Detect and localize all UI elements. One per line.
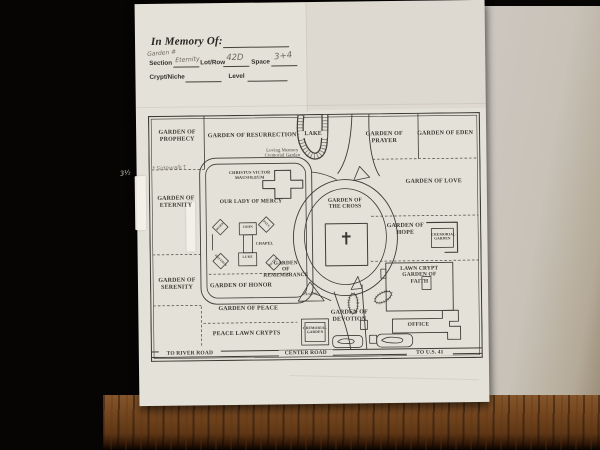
label-garden-of-resurrection: GARDEN OF RESURRECTION: [206, 132, 298, 140]
level-field-line: [247, 79, 287, 81]
photo-of-cemetery-map-document: { "form": { "title": "In Memory Of:", "a…: [0, 0, 600, 450]
label-our-lady-of-mercy: OUR LADY OF MERCY: [217, 198, 285, 205]
label-garden-of-honor: GARDEN OF HONOR: [204, 282, 278, 290]
label-garden-of-hope: GARDEN OF HOPE: [381, 223, 429, 237]
space-label: Space: [251, 59, 270, 66]
table-surface-right: [481, 6, 600, 398]
label-lake: LAKE: [299, 131, 327, 138]
label-cremorial-garden-devotion: CREMORIAL GARDEN: [303, 326, 328, 335]
label-center-road: CENTER ROAD: [279, 350, 333, 357]
label-office: OFFICE: [400, 321, 436, 328]
lot-row-field-line: [223, 65, 249, 67]
label-christus-victor-mausoleum: CHRISTUS VICTOR MAUSOLEUM: [215, 170, 285, 181]
lot-row-value-handwritten: 42D: [226, 53, 243, 63]
label-garden-of-serenity: GARDEN OF SERENITY: [152, 277, 202, 291]
label-garden-of-eden: GARDEN OF EDEN: [416, 130, 474, 138]
label-cremorial-garden-hope: CREMORIAL GARDEN: [431, 232, 453, 241]
lot-row-label: Lot/Row: [200, 59, 225, 66]
section-label: Section: [149, 60, 172, 67]
label-garden-of-eternity: GARDEN OF ETERNITY: [151, 195, 201, 209]
level-label: Level: [228, 73, 244, 80]
paper-document: In Memory Of: Garden # Section Eternity …: [135, 0, 490, 406]
label-angels: Angels: [300, 291, 322, 296]
label-garden-of-devotion: GARDEN OF DEVOTION: [326, 309, 372, 323]
form-title: In Memory Of:: [151, 35, 223, 48]
crypt-field-line: [185, 80, 221, 82]
handwritten-garden-note: Garden #: [147, 49, 177, 58]
section-field-line: [173, 65, 199, 67]
label-to-us-41: TO U.S. 41: [407, 349, 453, 356]
label-garden-of-prayer: GARDEN OF PRAYER: [354, 131, 414, 146]
label-loving-memory-cremorial-garden: Loving Memory Cremorial Garden: [254, 147, 310, 158]
space-field-line: [271, 64, 297, 66]
label-chapel-john: JOHN: [238, 226, 257, 230]
label-lawn-crypt-garden-of-faith: LAWN CRYPT GARDEN OF FAITH: [393, 265, 446, 285]
cross-symbol: ✝: [334, 229, 358, 249]
label-garden-of-prophecy: GARDEN OF PROPHECY: [152, 129, 202, 143]
label-chapel: CHAPEL: [252, 241, 276, 246]
label-garden-of-the-cross: GARDEN OF THE CROSS: [320, 197, 370, 210]
memory-of-field-line: [223, 45, 289, 48]
label-garden-of-peace: GARDEN OF PEACE: [202, 305, 294, 313]
crypt-niche-label: Crypt/Niche: [149, 74, 184, 81]
cemetery-map: ↑Sidewalk↑ GARDEN OF PROPHECY GARDEN OF …: [148, 112, 483, 362]
label-chapel-luke: LUKE: [238, 256, 258, 260]
paper-crease-diagonal: [289, 375, 479, 380]
paper-fold-shading: [307, 0, 486, 110]
label-garden-of-love: GARDEN OF LOVE: [401, 178, 467, 186]
label-peace-lawn-crypts: PEACE LAWN CRYPTS: [199, 330, 295, 338]
handwritten-margin-measure: 3½: [119, 168, 130, 177]
label-to-river-road: TO RIVER ROAD: [159, 350, 221, 357]
tape-strip-left-edge: [135, 176, 147, 230]
space-value-handwritten: 3+4: [274, 50, 293, 62]
section-value-handwritten: Eternity: [175, 56, 200, 65]
